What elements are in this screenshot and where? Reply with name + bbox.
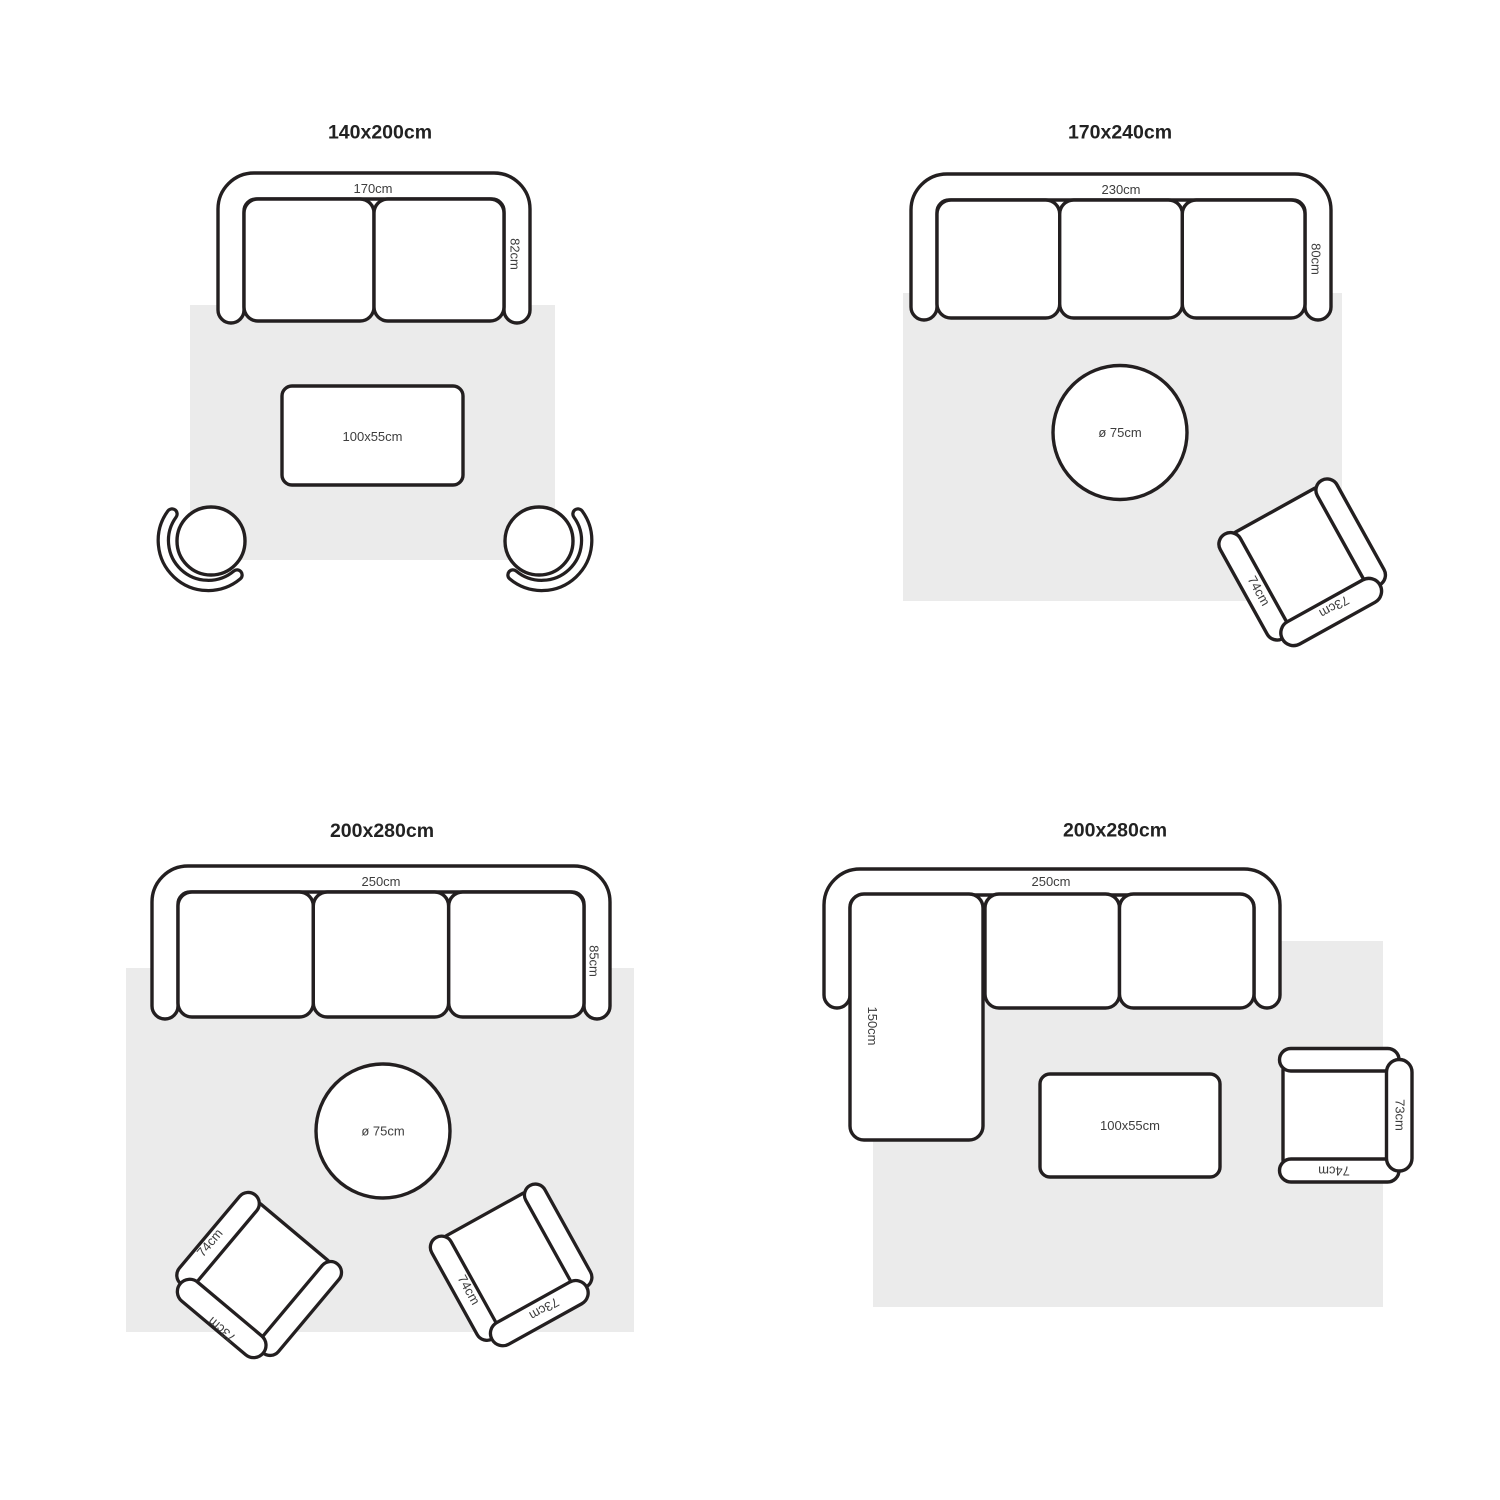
svg-text:100x55cm: 100x55cm — [343, 429, 403, 444]
svg-text:ø 75cm: ø 75cm — [1098, 425, 1141, 440]
svg-text:150cm: 150cm — [865, 1006, 880, 1045]
svg-text:170cm: 170cm — [353, 181, 392, 196]
svg-text:140x200cm: 140x200cm — [328, 122, 432, 144]
svg-text:200x280cm: 200x280cm — [330, 820, 434, 842]
svg-text:80cm: 80cm — [1309, 243, 1324, 275]
svg-text:170x240cm: 170x240cm — [1068, 122, 1172, 144]
svg-text:73cm: 73cm — [1392, 1099, 1407, 1131]
svg-text:82cm: 82cm — [508, 238, 523, 270]
svg-text:200x280cm: 200x280cm — [1063, 820, 1167, 842]
svg-text:74cm: 74cm — [1318, 1164, 1350, 1179]
svg-text:230cm: 230cm — [1101, 182, 1140, 197]
svg-text:250cm: 250cm — [1031, 874, 1070, 889]
svg-text:ø 75cm: ø 75cm — [361, 1124, 404, 1139]
svg-text:85cm: 85cm — [587, 945, 602, 977]
svg-text:100x55cm: 100x55cm — [1100, 1118, 1160, 1133]
svg-text:250cm: 250cm — [361, 874, 400, 889]
